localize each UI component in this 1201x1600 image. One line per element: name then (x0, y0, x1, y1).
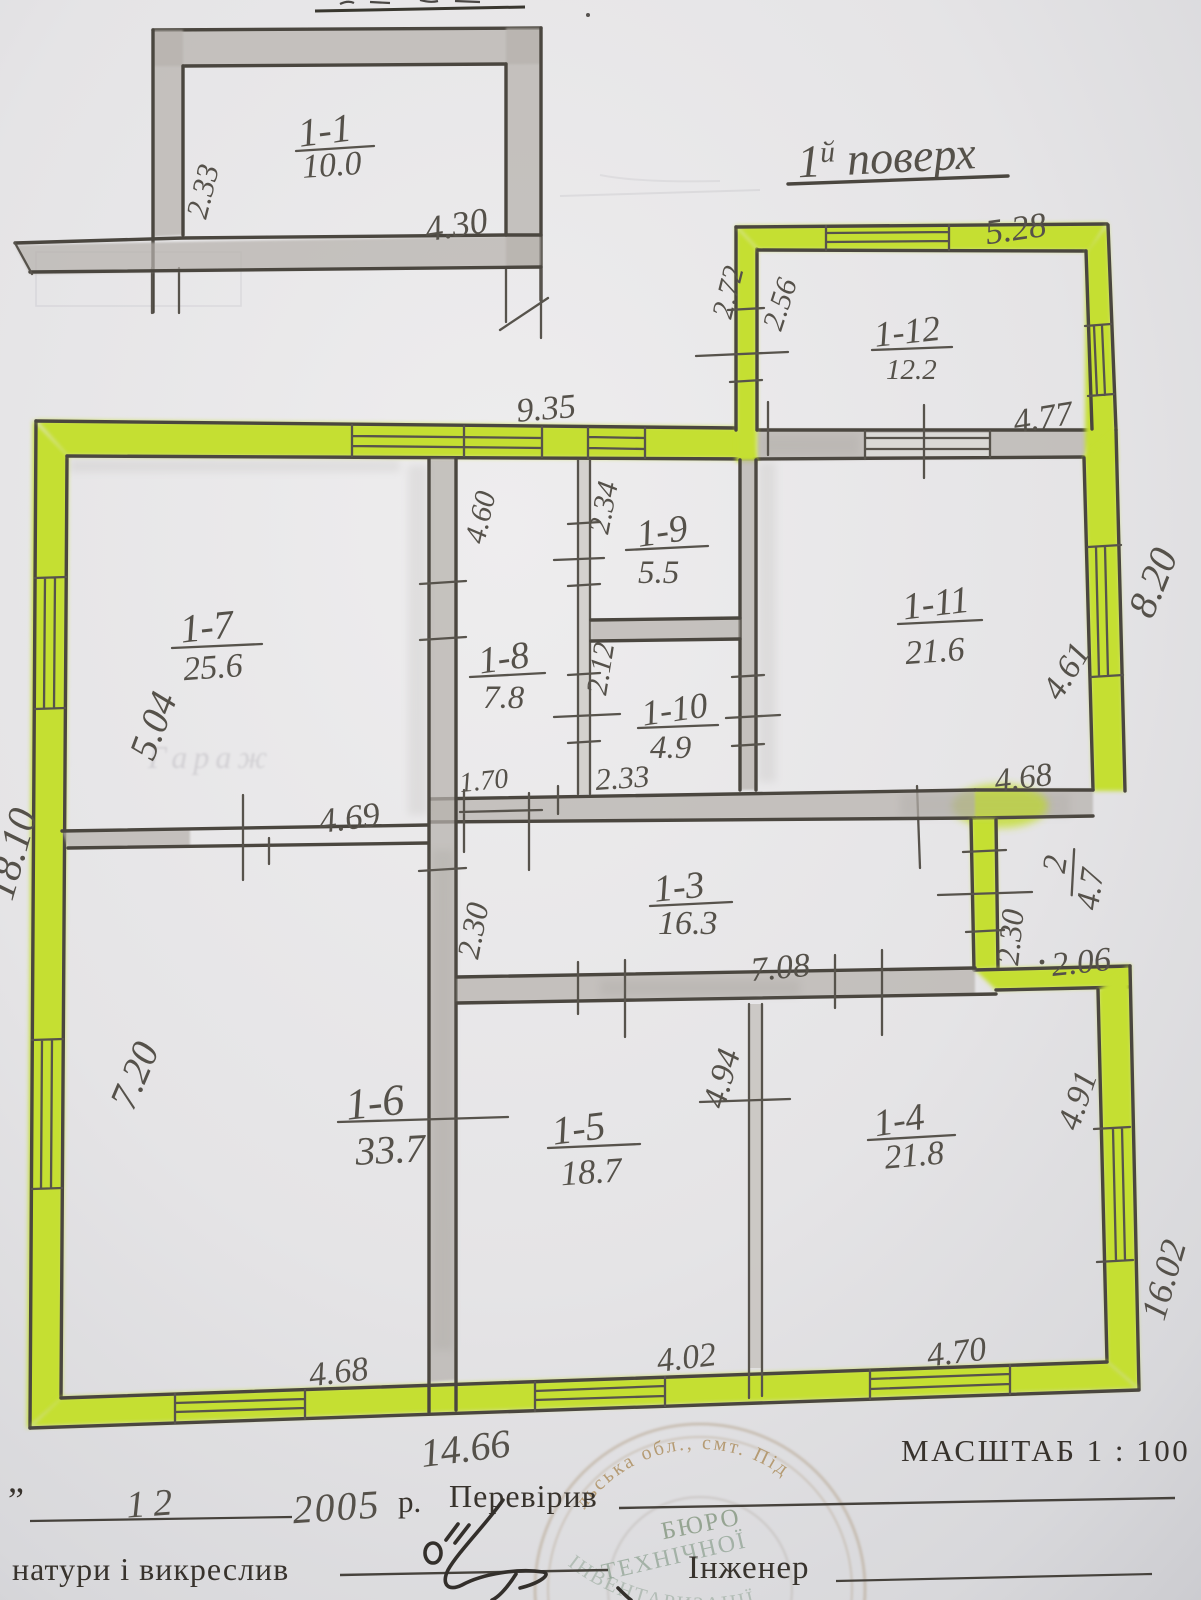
svg-text:18.7: 18.7 (559, 1150, 624, 1193)
svg-text:Перевірив: Перевірив (449, 1478, 598, 1514)
svg-text:1.70: 1.70 (458, 763, 510, 799)
svg-text:2005: 2005 (291, 1481, 382, 1532)
svg-text:1-7: 1-7 (178, 601, 238, 652)
svg-text:4.02: 4.02 (655, 1336, 719, 1380)
svg-text:4.68: 4.68 (992, 757, 1054, 800)
svg-text:21.6: 21.6 (904, 631, 966, 672)
svg-text:4.70: 4.70 (925, 1331, 989, 1375)
svg-text:9.35: 9.35 (515, 388, 577, 430)
svg-text:натури і викреслив: натури і викреслив (12, 1551, 289, 1587)
svg-text:7.08: 7.08 (749, 947, 811, 989)
svg-text:21.8: 21.8 (883, 1135, 945, 1177)
svg-text:2.06: 2.06 (1050, 941, 1113, 984)
svg-text:33.7: 33.7 (353, 1125, 428, 1174)
svg-text:5.5: 5.5 (638, 555, 679, 591)
svg-text:4.9: 4.9 (650, 730, 691, 766)
svg-text:2.33: 2.33 (594, 758, 651, 797)
svg-text:7.8: 7.8 (483, 680, 525, 716)
svg-text:16.3: 16.3 (658, 905, 718, 942)
svg-text:р.: р. (398, 1484, 421, 1519)
svg-text:12.2: 12.2 (886, 354, 937, 386)
svg-text:4.7: 4.7 (1070, 865, 1112, 912)
svg-text:Інженер: Інженер (688, 1550, 809, 1586)
svg-text:МАСШТАБ 1 : 100: МАСШТАБ 1 : 100 (901, 1433, 1190, 1468)
svg-text:”: ” (8, 1480, 24, 1520)
svg-text:4.68: 4.68 (307, 1350, 371, 1394)
svg-text:4.69: 4.69 (316, 795, 382, 841)
svg-text:2.30: 2.30 (989, 907, 1031, 966)
svg-text:25.6: 25.6 (182, 647, 244, 688)
svg-text:10.0: 10.0 (301, 145, 363, 186)
